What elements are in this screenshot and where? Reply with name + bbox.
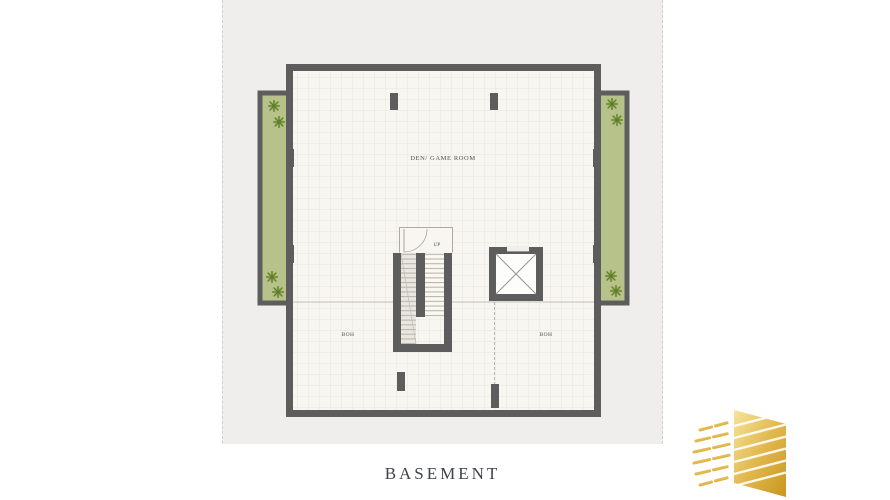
floor-plan: UP DEN/ GAME ROOM BOH BOH [260,68,627,414]
elevator [489,246,543,301]
plant-icon [268,100,280,112]
plant-icon [611,114,623,126]
planter-right [597,93,627,303]
plant-icon [272,286,284,298]
plant-icon [610,285,622,297]
room-label-boh-right: BOH [540,332,553,338]
floor-title: BASEMENT [222,464,663,484]
plant-icon [266,271,278,283]
room-label-boh-left: BOH [342,332,355,338]
plant-icon [273,116,285,128]
stairs-up-label: UP [434,243,441,248]
gold-building-logo-icon [694,410,786,497]
logo-speed-lines [694,422,730,485]
planter-left [260,93,290,303]
plant-icon [605,270,617,282]
floor-plan-canvas: UP DEN/ GAME ROOM BOH BOH [0,0,890,500]
elevator-door [507,246,529,251]
room-label-den-game-room: DEN/ GAME ROOM [410,155,475,162]
plant-icon [606,98,618,110]
